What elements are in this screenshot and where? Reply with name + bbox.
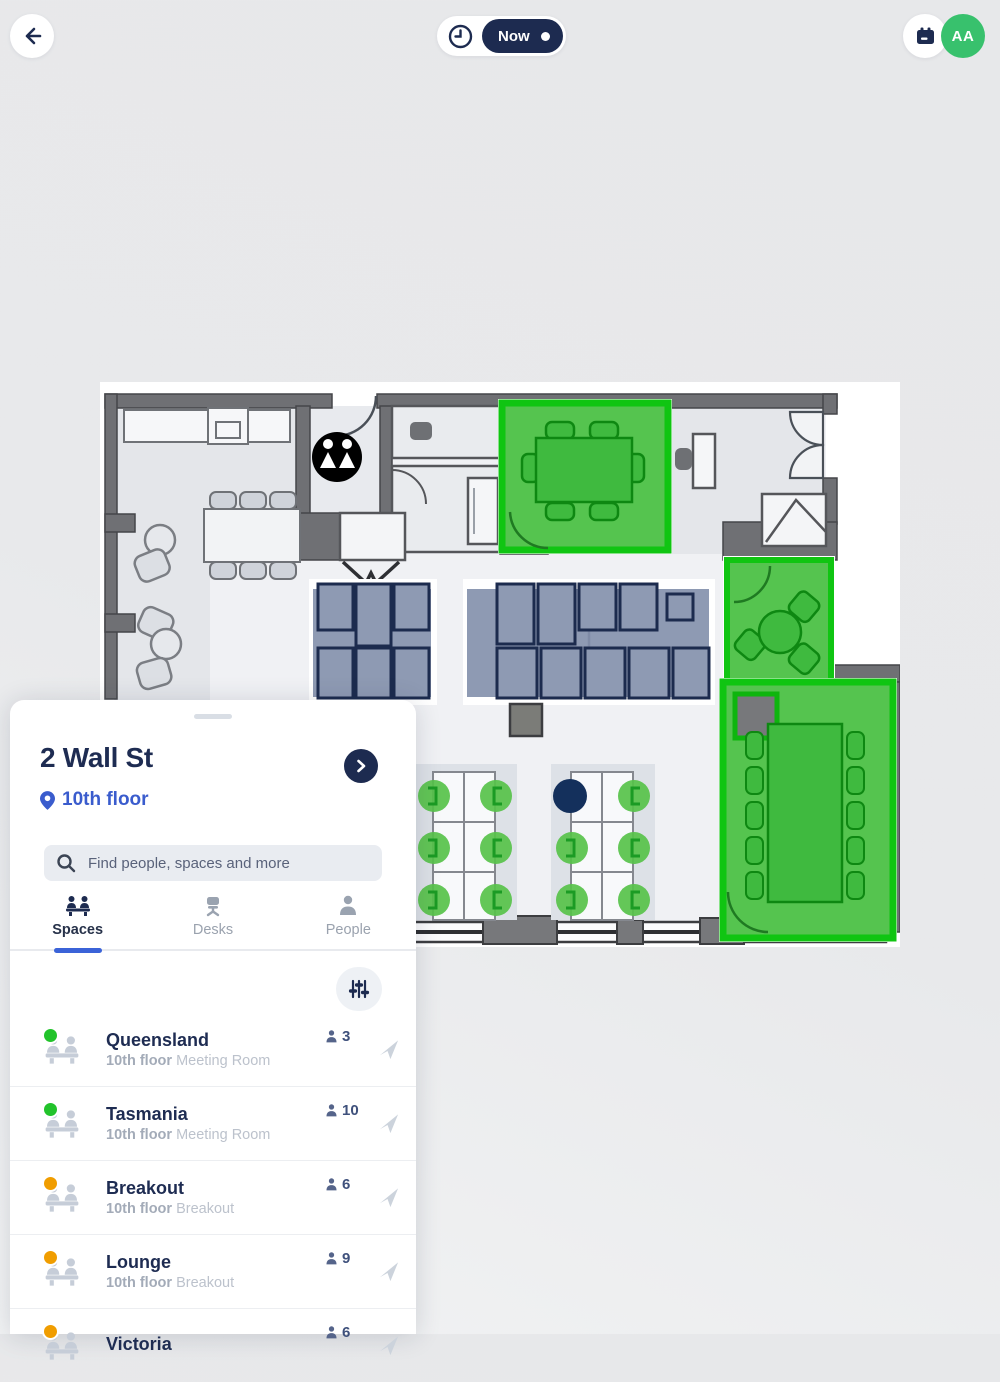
now-label: Now: [498, 28, 530, 45]
tab-bar: Spaces Desks People: [10, 893, 416, 951]
status-dot: [42, 1101, 59, 1118]
building-title: 2 Wall St: [40, 741, 344, 775]
person-icon: [325, 1326, 338, 1339]
capacity-badge: 3: [325, 1028, 377, 1045]
list-item-lounge[interactable]: Lounge 10th floor Breakout 9: [10, 1234, 416, 1308]
capacity-badge: 6: [325, 1324, 377, 1341]
capacity-count: 9: [342, 1250, 350, 1267]
status-dot: [42, 1249, 59, 1266]
occupied-desk-dot[interactable]: [553, 779, 587, 813]
people-icon: [338, 895, 358, 917]
space-floor: 10th floor: [106, 1127, 172, 1143]
navigate-icon[interactable]: [377, 1260, 400, 1283]
building-detail-button[interactable]: [344, 749, 378, 783]
person-icon: [325, 1030, 338, 1043]
status-dot: [42, 1323, 59, 1340]
space-floor: 10th floor: [106, 1275, 172, 1291]
filter-button[interactable]: [336, 967, 382, 1011]
capacity-count: 6: [342, 1176, 350, 1193]
sofa-cluster-b: [463, 579, 715, 705]
storage-closet: [762, 494, 826, 546]
meeting-room-highlight-tasmania[interactable]: [719, 678, 897, 942]
time-selector[interactable]: Now: [437, 16, 566, 56]
tab-spaces[interactable]: Spaces: [10, 893, 145, 949]
floor-box: [510, 704, 542, 736]
space-floor: 10th floor: [106, 1201, 172, 1217]
back-button[interactable]: [10, 14, 54, 58]
capacity-badge: 10: [325, 1102, 377, 1119]
phone-rooms: [392, 406, 500, 552]
navigate-icon[interactable]: [377, 1038, 400, 1061]
space-type: Breakout: [176, 1275, 234, 1291]
capacity-count: 6: [342, 1324, 350, 1341]
space-name: Tasmania: [106, 1104, 325, 1124]
meeting-room-highlight-top[interactable]: [498, 399, 672, 554]
search-bar[interactable]: [44, 845, 382, 881]
person-icon: [325, 1104, 338, 1117]
list-item-tasmania[interactable]: Tasmania 10th floor Meeting Room 10: [10, 1086, 416, 1160]
spaces-list: Queensland 10th floor Meeting Room 3: [10, 1013, 416, 1382]
status-dot: [42, 1027, 59, 1044]
clock-icon: [447, 23, 474, 50]
navigate-icon[interactable]: [377, 1186, 400, 1209]
sofa-cluster-a: [309, 579, 437, 705]
calendar-icon: [915, 26, 936, 47]
now-toggle[interactable]: Now: [482, 19, 563, 53]
spaces-icon: [65, 895, 91, 917]
active-tab-underline: [54, 948, 102, 953]
tab-spaces-label: Spaces: [52, 922, 103, 938]
capacity-badge: 6: [325, 1176, 377, 1193]
list-item-breakout[interactable]: Breakout 10th floor Breakout 6: [10, 1160, 416, 1234]
search-icon: [56, 853, 76, 873]
capacity-count: 10: [342, 1102, 359, 1119]
tab-desks[interactable]: Desks: [145, 893, 280, 949]
navigate-icon[interactable]: [377, 1112, 400, 1135]
space-name: Breakout: [106, 1178, 325, 1198]
person-icon: [325, 1178, 338, 1191]
status-dot: [42, 1175, 59, 1192]
list-item-queensland[interactable]: Queensland 10th floor Meeting Room 3: [10, 1013, 416, 1086]
arrow-left-icon: [21, 25, 43, 47]
capacity-badge: 9: [325, 1250, 377, 1267]
capacity-count: 3: [342, 1028, 350, 1045]
space-floor: 10th floor: [106, 1053, 172, 1069]
space-type: Meeting Room: [176, 1127, 270, 1143]
space-type: Meeting Room: [176, 1053, 270, 1069]
bottom-sheet: 2 Wall St 10th floor: [10, 700, 416, 1334]
floor-selector[interactable]: 10th floor: [40, 789, 386, 811]
space-type: Breakout: [176, 1201, 234, 1217]
sliders-icon: [348, 978, 370, 1000]
tab-desks-label: Desks: [193, 922, 233, 938]
search-input[interactable]: [86, 854, 370, 873]
chevron-right-icon: [354, 759, 368, 773]
tab-people-label: People: [326, 922, 371, 938]
map-pin-icon: [40, 791, 55, 810]
space-name: Lounge: [106, 1252, 325, 1272]
desks-icon: [202, 895, 224, 917]
space-name: Queensland: [106, 1030, 325, 1050]
meeting-room-highlight-queensland[interactable]: [723, 556, 835, 686]
tab-people[interactable]: People: [281, 893, 416, 949]
restroom-icon: [312, 432, 362, 482]
person-icon: [325, 1252, 338, 1265]
navigate-icon[interactable]: [377, 1334, 400, 1357]
space-name: Victoria: [106, 1334, 325, 1354]
avatar-initials: AA: [952, 28, 975, 45]
floor-label: 10th floor: [62, 789, 149, 811]
avatar[interactable]: AA: [941, 14, 985, 58]
list-item-victoria[interactable]: Victoria 6: [10, 1308, 416, 1382]
toggle-dot: [541, 32, 550, 41]
sheet-drag-handle[interactable]: [194, 714, 232, 719]
